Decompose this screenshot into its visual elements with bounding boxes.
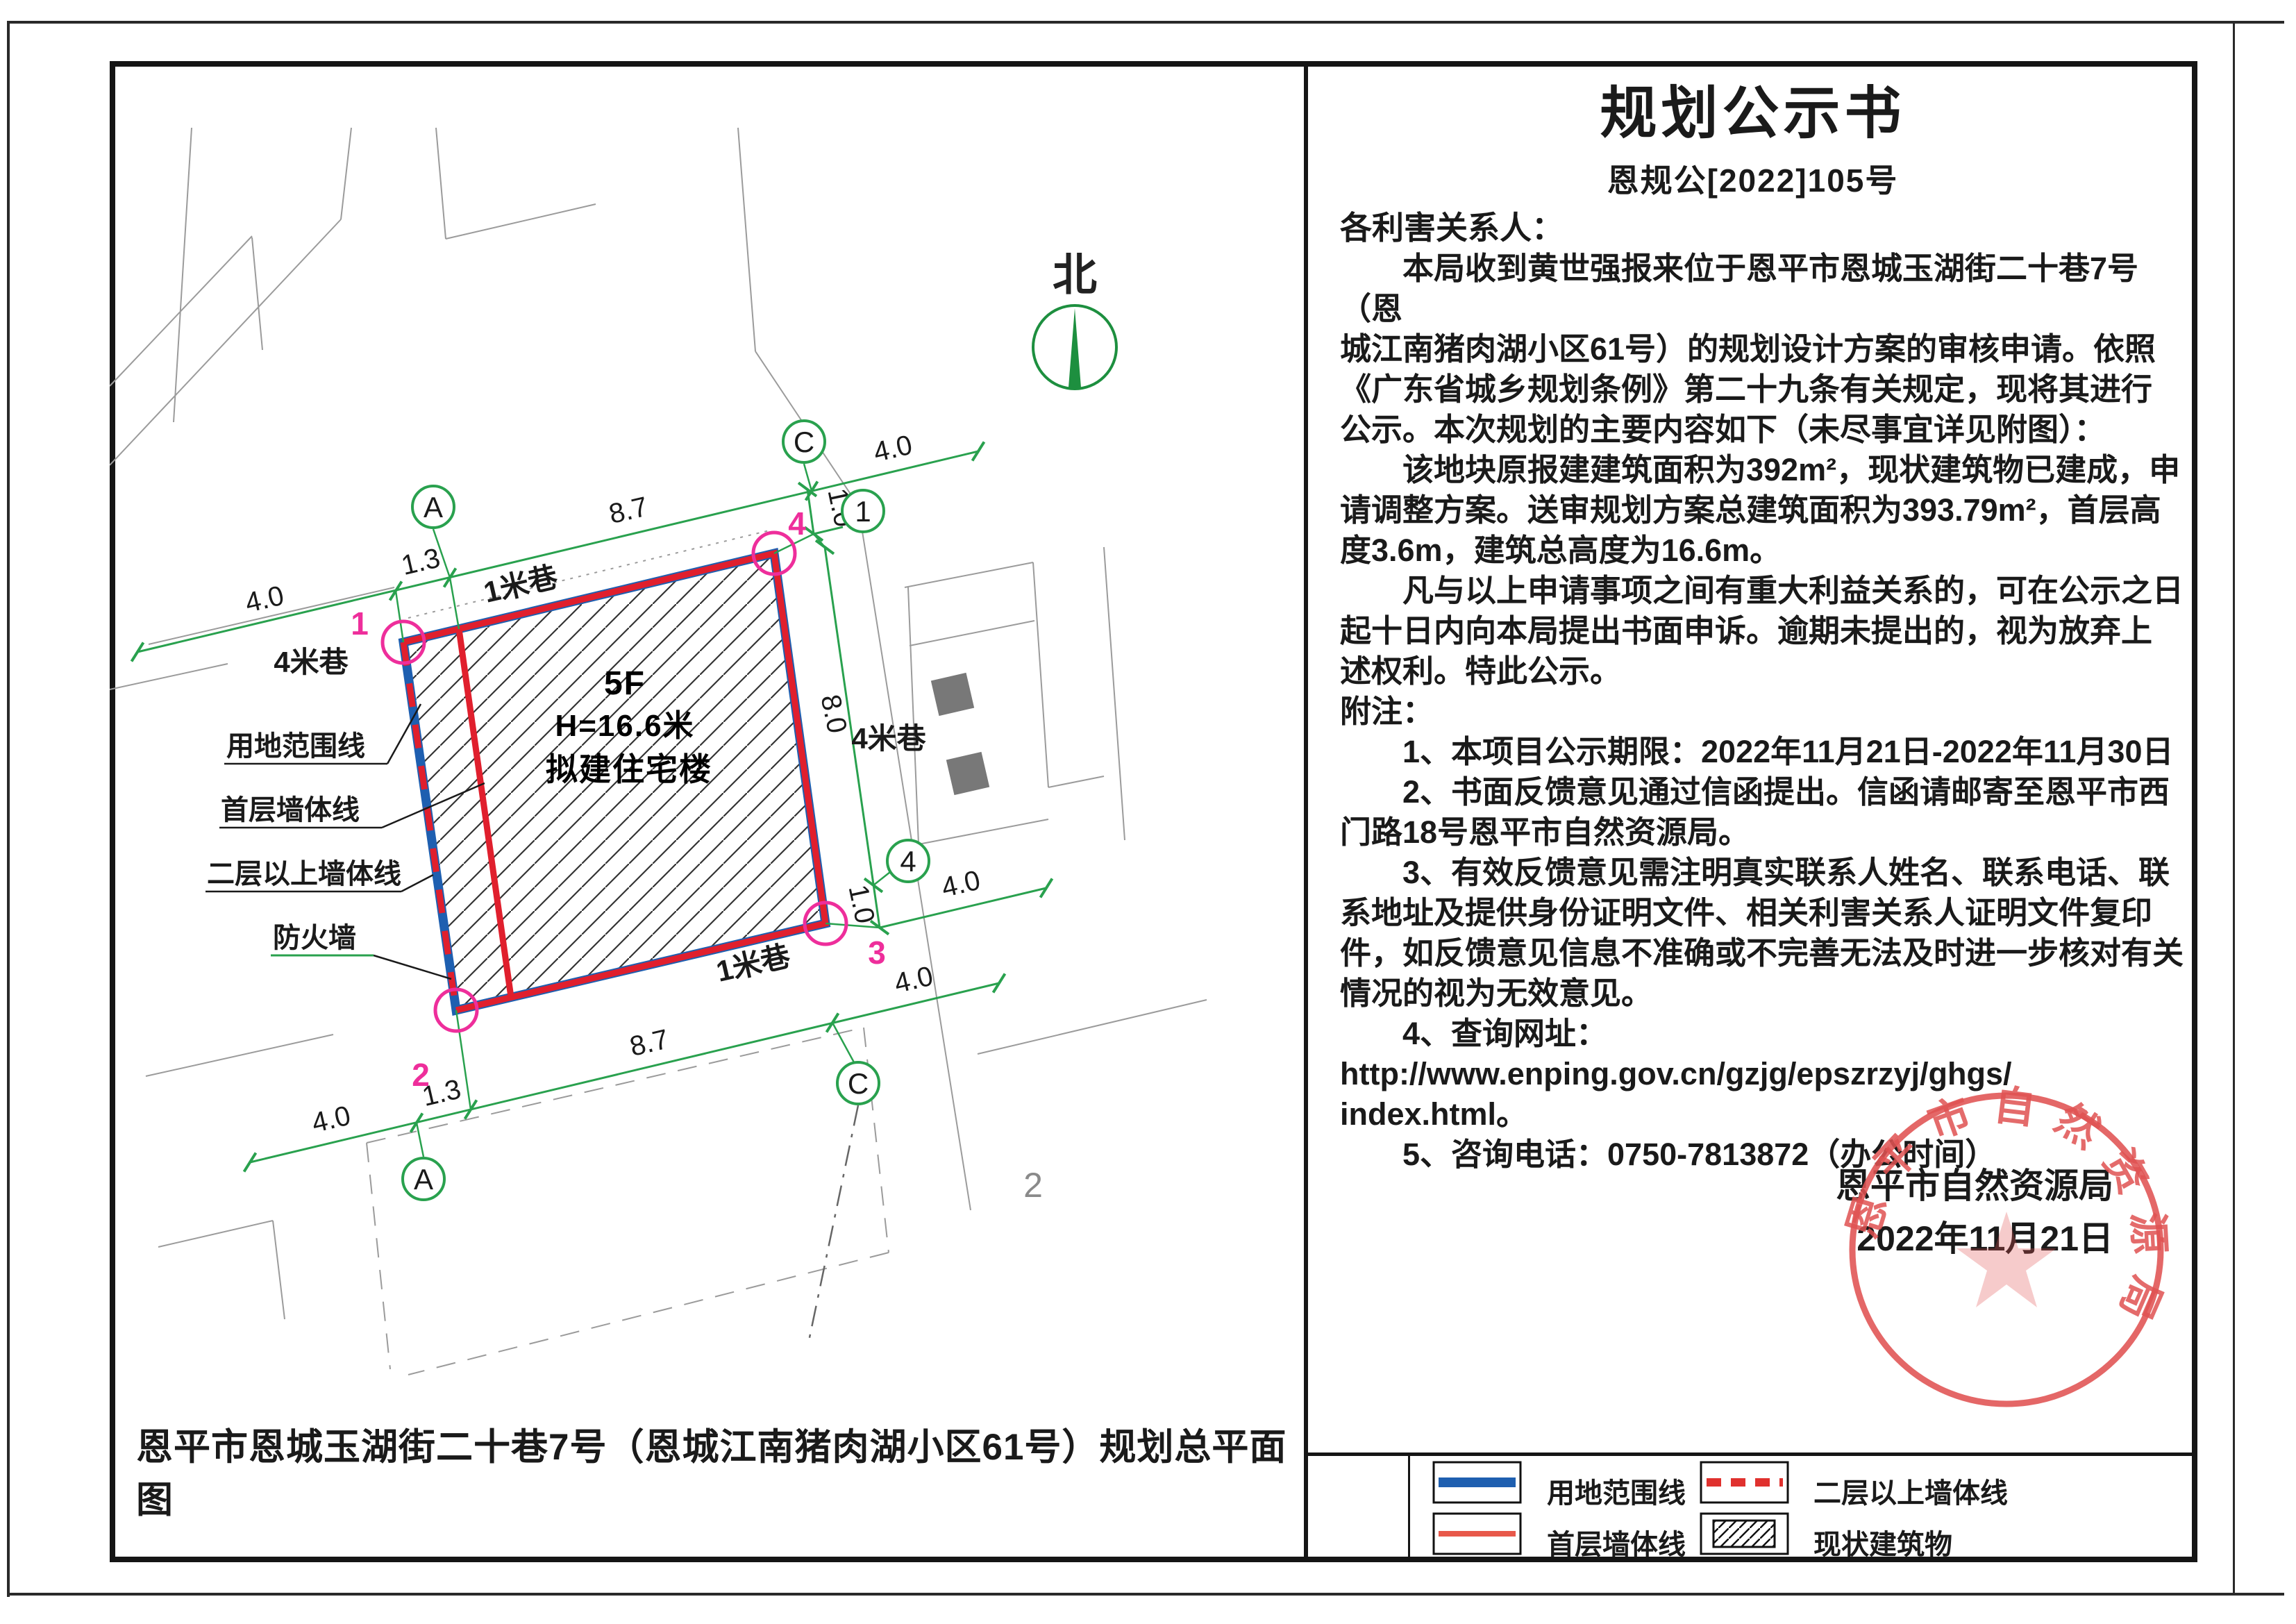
road-right: 4米巷 (851, 722, 926, 755)
scan-edge-right (2233, 21, 2235, 1596)
official-seal: 恩平市自然资源局 (1826, 1069, 2187, 1430)
legend-swatch-red-solid (1434, 1514, 1520, 1554)
dim-top-right: 4.0 (871, 430, 915, 468)
panel-divider (1304, 61, 1308, 1562)
dim-top-left: 4.0 (242, 580, 287, 619)
axis-c-bottom: C (848, 1067, 869, 1100)
legend-swatch-red-dashed (1701, 1462, 1788, 1502)
north-label: 北 (1053, 250, 1097, 300)
legend-swatch-blue-solid (1434, 1462, 1520, 1502)
scan-edge-left (7, 21, 10, 1597)
north-arrow: 北 (1033, 250, 1116, 389)
document-number: 恩规公[2022]105号 (1308, 156, 2197, 201)
leader-fire-wall: 防火墙 (273, 923, 356, 953)
corner-3: 3 (868, 935, 886, 971)
axis-c-extension (808, 1105, 858, 1344)
corner-1: 1 (351, 605, 369, 642)
site-plan: 2 北 5F H=16.6米 拟建住宅楼 (110, 61, 1304, 1562)
legend (1416, 1455, 2194, 1561)
legend-swatch-hatched (1701, 1514, 1788, 1554)
legend-cell-border (1408, 1453, 1410, 1562)
scan-edge-top (7, 21, 2284, 24)
legend-label-land-boundary: 用地范围线 (1547, 1471, 1686, 1511)
corner-2: 2 (412, 1057, 430, 1093)
dim-bottom-width: 8.7 (627, 1024, 671, 1062)
dim-top-width: 8.7 (606, 492, 651, 530)
axis-c-top: C (794, 426, 814, 458)
scanned-planning-notice: 2 北 5F H=16.6米 拟建住宅楼 (0, 0, 2296, 1624)
legend-label-first-floor-wall: 首层墙体线 (1547, 1522, 1686, 1562)
seal-star (1956, 1212, 2056, 1307)
building-floors: 5F (604, 665, 646, 702)
axis-a-top: A (424, 491, 443, 524)
axis-1: 1 (855, 495, 871, 528)
leader-first-floor-wall: 首层墙体线 (221, 795, 360, 826)
plan-caption: 恩平市恩城玉湖街二十巷7号（恩城江南猪肉湖小区61号）规划总平面图 (136, 1418, 1289, 1523)
parcel-number: 2 (1023, 1166, 1043, 1205)
axis-a-bottom: A (414, 1163, 433, 1196)
notice-body: 本局收到黄世强报来位于恩平市恩城玉湖街二十巷7号（恩 城江南猪肉湖小区61号）的… (1340, 249, 2190, 1175)
axis-4: 4 (900, 845, 916, 878)
road-left: 4米巷 (274, 646, 349, 678)
legend-label-existing-building: 现状建筑物 (1813, 1522, 1952, 1562)
dim-top-offset: 1.3 (399, 543, 443, 581)
salutation: 各利害关系人： (1340, 203, 2184, 249)
dim-bottom-left: 4.0 (309, 1100, 353, 1139)
north-arrow-needle (1069, 308, 1081, 387)
scan-edge-bottom (7, 1593, 2284, 1596)
notice-title: 规划公示书 (1308, 67, 2197, 149)
dim-right-out: 4.0 (939, 865, 983, 903)
legend-label-upper-wall: 二层以上墙体线 (1813, 1471, 2008, 1511)
building-name: 拟建住宅楼 (546, 751, 712, 787)
proposed-building: 5F H=16.6米 拟建住宅楼 (403, 553, 826, 1010)
building-height: H=16.6米 (555, 709, 694, 743)
leader-land-boundary: 用地范围线 (226, 731, 365, 762)
leader-upper-wall: 二层以上墙体线 (207, 859, 401, 889)
dim-bottom-out: 4.0 (891, 961, 936, 999)
corner-4: 4 (788, 505, 806, 542)
